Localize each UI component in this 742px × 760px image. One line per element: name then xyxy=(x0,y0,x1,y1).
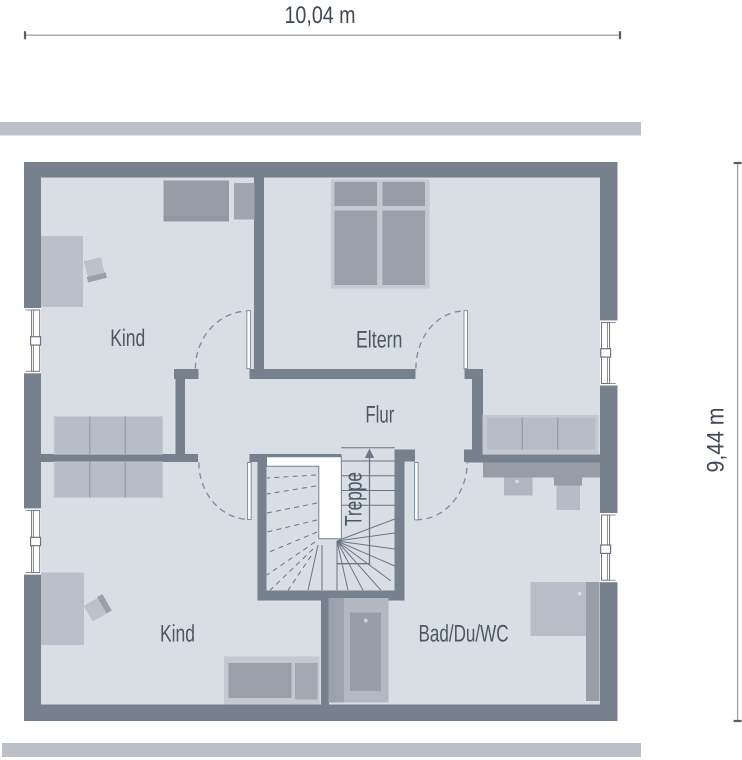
svg-text:9,44 m: 9,44 m xyxy=(703,408,730,473)
svg-text:Kind: Kind xyxy=(110,325,145,352)
svg-text:Kind: Kind xyxy=(160,621,195,648)
svg-text:Flur: Flur xyxy=(365,402,394,429)
svg-text:10,04 m: 10,04 m xyxy=(285,2,356,29)
svg-text:Eltern: Eltern xyxy=(356,327,403,354)
svg-text:Bad/Du/WC: Bad/Du/WC xyxy=(419,621,509,648)
svg-text:Treppe: Treppe xyxy=(340,472,367,526)
